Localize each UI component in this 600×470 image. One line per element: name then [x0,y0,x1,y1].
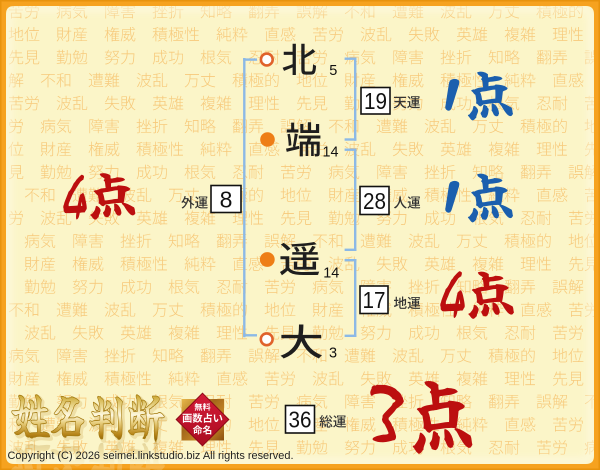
svg-text:14: 14 [323,265,339,281]
svg-text:19: 19 [364,88,387,114]
svg-text:5: 5 [329,63,337,79]
svg-text:28: 28 [363,188,386,214]
svg-text:3: 3 [329,346,337,362]
svg-text:17: 17 [363,287,386,313]
svg-text:Copyright (C) 2026 seimei.link: Copyright (C) 2026 seimei.linkstudio.biz… [8,450,294,462]
svg-text:8: 8 [220,186,233,212]
svg-text:14: 14 [323,145,339,161]
svg-text:36: 36 [289,407,312,433]
